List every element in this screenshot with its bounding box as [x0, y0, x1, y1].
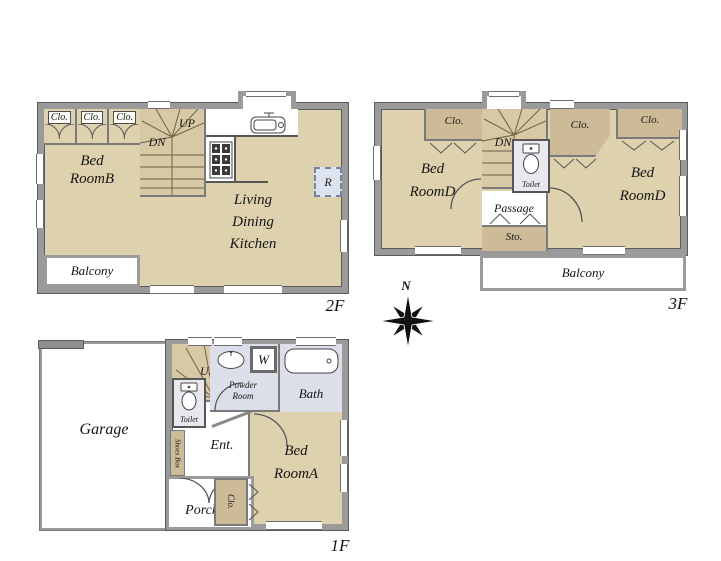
f1-garage-wall-stub: [38, 340, 84, 349]
closet-label: Clo.: [81, 111, 104, 124]
f3-bedroom-d-left-label: Bed RoomD: [385, 158, 480, 203]
window: [36, 154, 44, 184]
f2-floor-label: 2F: [318, 296, 352, 316]
compass-rose-icon: [378, 294, 438, 348]
window: [340, 420, 348, 456]
window: [148, 101, 170, 109]
window: [150, 285, 194, 294]
folding-door-icon: [620, 140, 678, 152]
window: [340, 464, 348, 492]
closet-cell: Clo.: [109, 109, 140, 143]
f3-bedroom-d-right-label: Bed RoomD: [585, 162, 700, 207]
window: [296, 337, 336, 346]
door-arc-icon: [549, 187, 583, 223]
f2-refrigerator-label: R: [324, 175, 331, 189]
window: [415, 246, 461, 255]
washing-machine-box: W: [250, 346, 277, 373]
f3-closet-right-label: Clo.: [618, 114, 682, 127]
f3-toilet-label: Toilet: [514, 180, 548, 190]
window: [340, 220, 348, 252]
window: [188, 337, 212, 346]
window: [224, 285, 282, 294]
f3-balcony: Balcony: [480, 255, 686, 291]
f3-balcony-label: Balcony: [562, 265, 605, 281]
f1-toilet-room: Toilet: [172, 378, 206, 428]
f3-storage-label: Sto.: [482, 231, 546, 244]
f3-toilet-room: Toilet: [512, 139, 550, 193]
window: [679, 130, 687, 160]
f2-stairs: DN UP: [140, 109, 206, 197]
f1-washer-label: W: [258, 352, 269, 368]
f1-shoes-box-label: Shoes Box: [174, 439, 182, 468]
window: [583, 246, 625, 255]
window: [266, 521, 322, 530]
f3-floor-label: 3F: [660, 294, 696, 314]
swing-door-icon: [44, 124, 75, 140]
window: [550, 100, 574, 109]
f1-closet: Clo.: [214, 478, 248, 526]
f3-closet-right: Clo.: [616, 109, 682, 139]
window: [246, 91, 286, 97]
f1-closet-label: Clo.: [226, 494, 236, 509]
window: [214, 337, 242, 346]
f1-bath-label: Bath: [280, 386, 342, 402]
f1-shoes-box: Shoes Box: [170, 430, 185, 476]
toilet-icon: [179, 382, 199, 412]
f2-refrigerator: R: [314, 167, 342, 197]
folding-door-icon: [428, 142, 478, 155]
closet-label: Clo.: [48, 111, 71, 124]
f2-counter-edge: [206, 181, 268, 183]
f2-ldk-label: Living Dining Kitchen: [188, 190, 318, 255]
closet-cell: Clo.: [44, 109, 77, 143]
f3-closet-middle-label: Clo.: [550, 119, 610, 132]
folding-door-icon: [486, 212, 544, 225]
toilet-icon: [521, 143, 541, 175]
floor-plan-page: Clo. Clo. Clo. Bed RoomB DN UP: [0, 0, 721, 561]
window: [373, 146, 381, 180]
f1-bedroom-a-label: Bed RoomA: [252, 440, 340, 485]
bathtub-icon: [284, 348, 339, 374]
f3-closet-left-label: Clo.: [426, 115, 482, 128]
f1-toilet-label: Toilet: [174, 415, 204, 425]
f3-closet-left: Clo.: [424, 109, 482, 141]
f2-stairs-dn-label: DN: [142, 135, 172, 149]
kitchen-sink-icon: [250, 112, 288, 134]
f1-entrance-label: Ent.: [196, 438, 248, 455]
stove-icon: [209, 141, 233, 179]
f2-balcony: Balcony: [44, 255, 140, 287]
f1-garage-label: Garage: [44, 420, 164, 439]
swing-door-icon: [109, 124, 140, 140]
f2-stairs-up-label: UP: [172, 116, 202, 130]
washbasin-icon: [216, 348, 246, 370]
closet-cell: Clo.: [77, 109, 110, 143]
window: [489, 91, 519, 97]
f2-bedroom-b-label: Bed RoomB: [44, 152, 140, 188]
f2-balcony-label: Balcony: [71, 263, 114, 279]
folding-door-icon: [248, 482, 260, 522]
door-arc-icon: [214, 382, 244, 412]
compass-north-label: N: [396, 278, 416, 294]
f3-storage: Sto.: [482, 225, 548, 251]
f2-closet-row: Clo. Clo. Clo.: [44, 109, 140, 145]
window: [36, 200, 44, 228]
closet-label: Clo.: [113, 111, 136, 124]
f1-floor-label: 1F: [322, 536, 358, 556]
swing-door-icon: [77, 124, 108, 140]
